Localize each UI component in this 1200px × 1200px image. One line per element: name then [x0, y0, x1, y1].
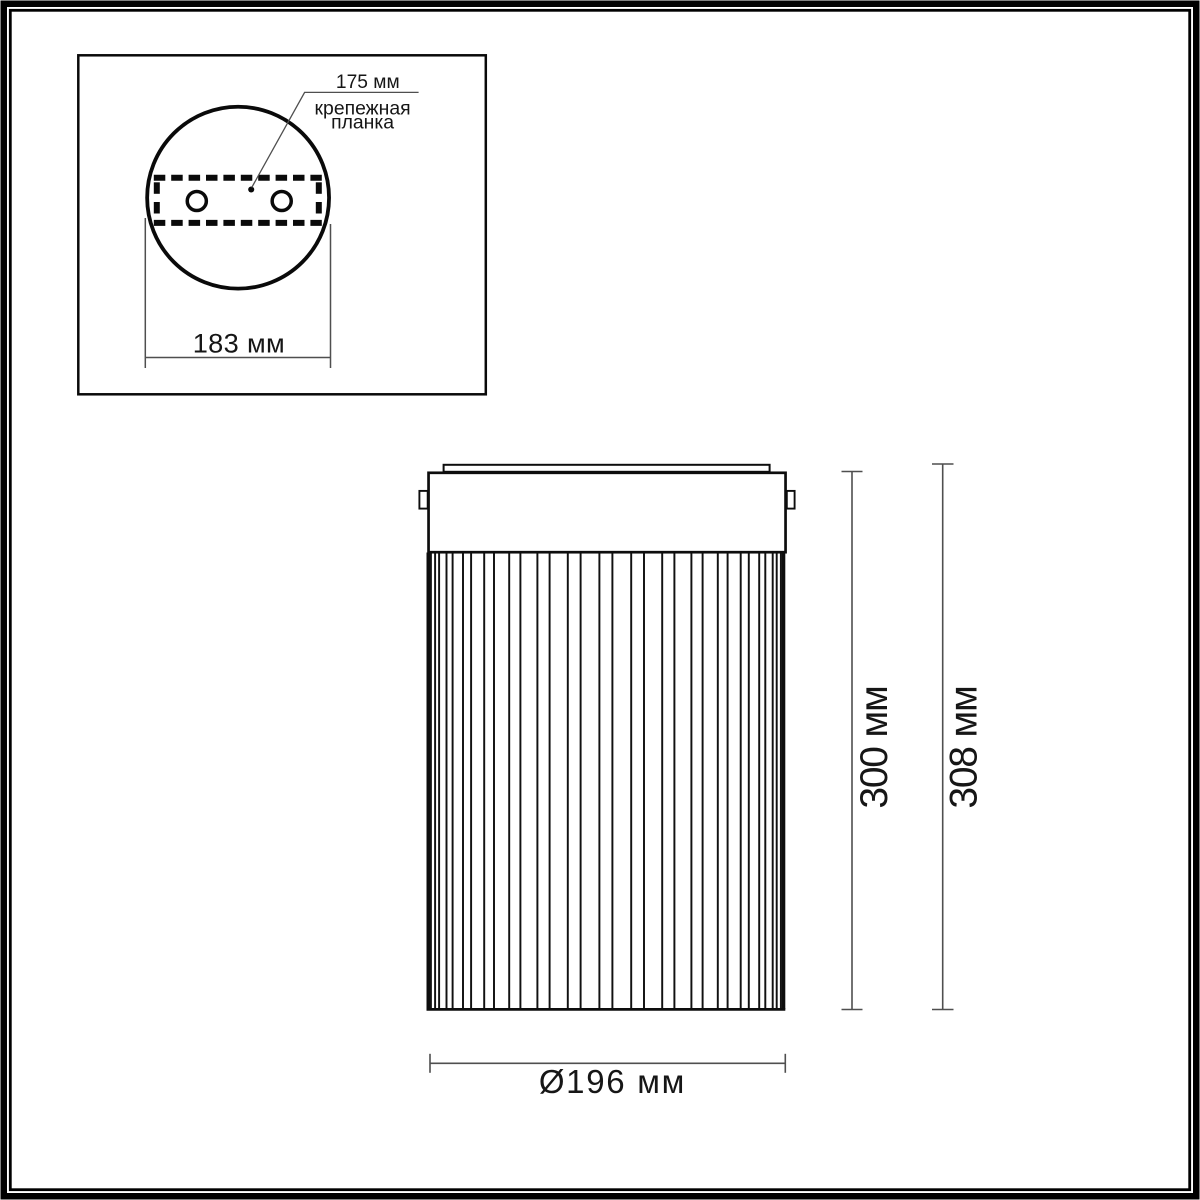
svg-text:Ø196 мм: Ø196 мм — [539, 1063, 686, 1100]
svg-text:планка: планка — [331, 112, 394, 134]
svg-text:308 мм: 308 мм — [942, 686, 985, 808]
svg-text:300 мм: 300 мм — [853, 686, 896, 808]
svg-text:175 мм: 175 мм — [336, 72, 400, 93]
svg-text:183 мм: 183 мм — [193, 327, 285, 358]
